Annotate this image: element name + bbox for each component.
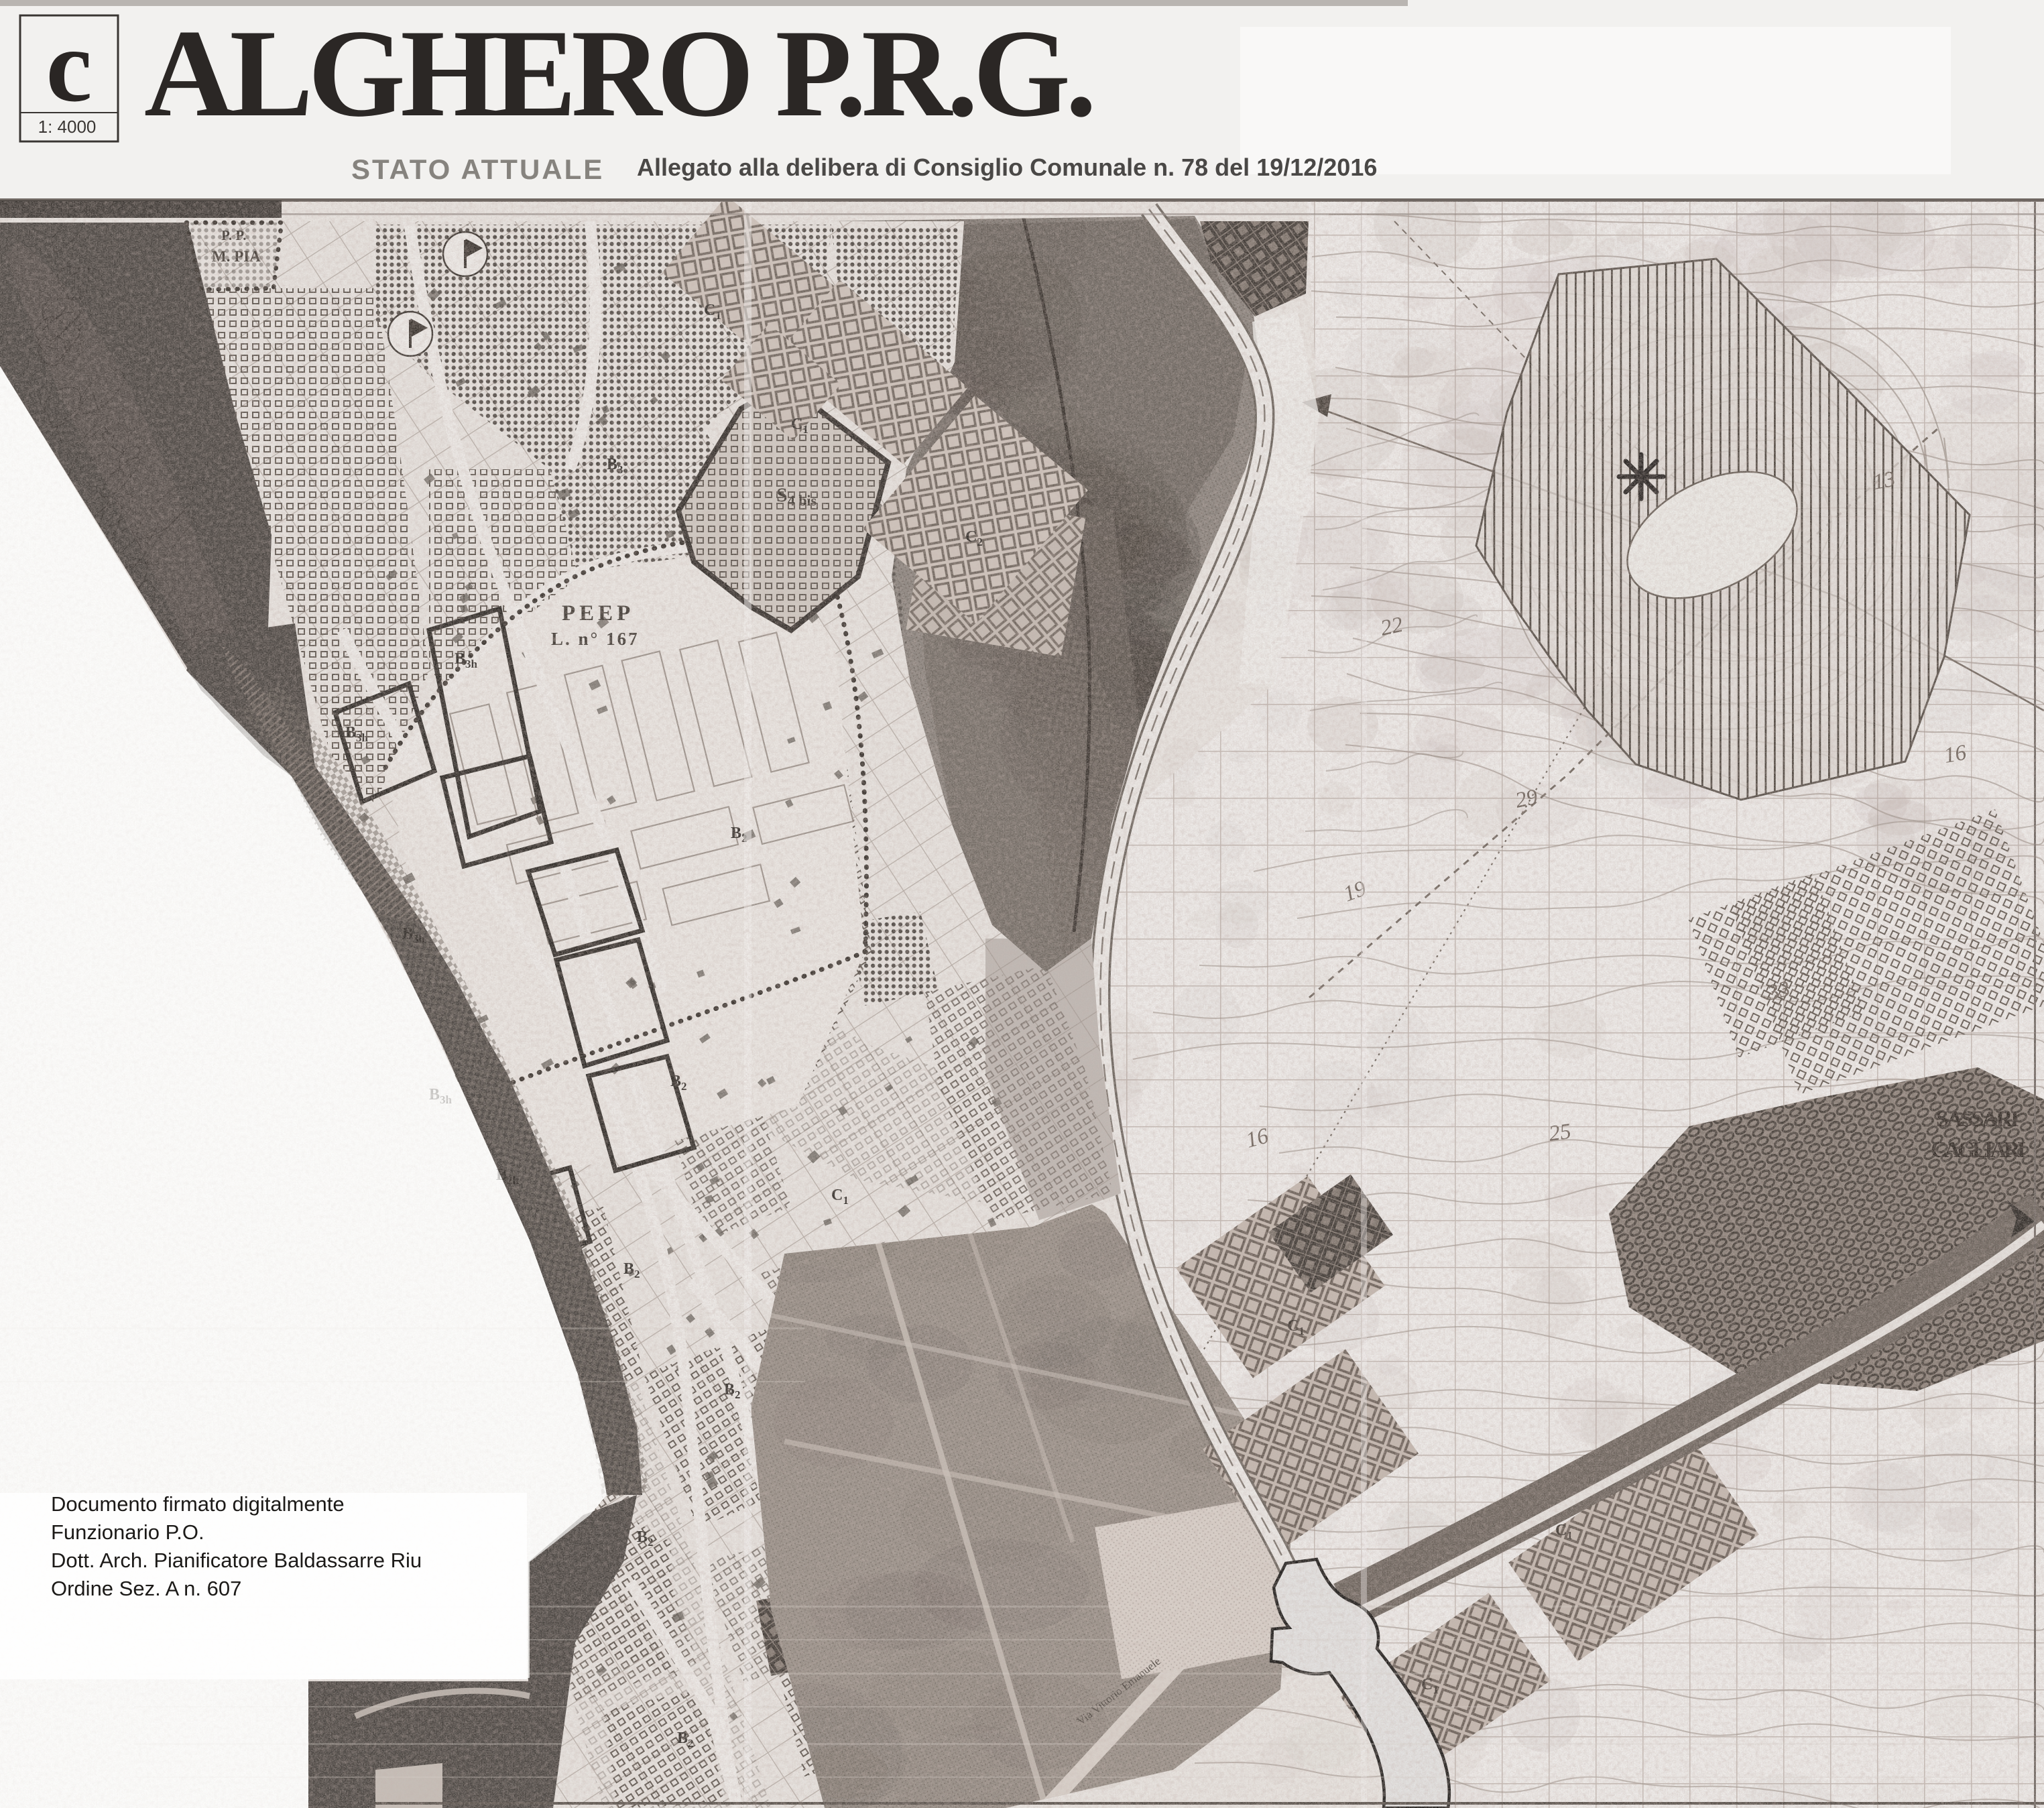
svg-text:Dott. Arch. Pianificatore Bald: Dott. Arch. Pianificatore Baldassarre Ri… xyxy=(51,1549,422,1572)
svg-text:Ordine Sez. A n. 607: Ordine Sez. A n. 607 xyxy=(51,1577,241,1600)
svg-text:ALGHERO P.R.G.: ALGHERO P.R.G. xyxy=(144,4,1099,143)
svg-text:c: c xyxy=(46,8,93,123)
svg-text:Funzionario P.O.: Funzionario P.O. xyxy=(51,1520,204,1544)
svg-text:STATO ATTUALE: STATO ATTUALE xyxy=(351,154,604,185)
svg-text:1: 4000: 1: 4000 xyxy=(38,117,97,137)
svg-text:Documento firmato digitalmente: Documento firmato digitalmente xyxy=(51,1492,345,1516)
svg-text:Allegato alla delibera di Cons: Allegato alla delibera di Consiglio Comu… xyxy=(637,154,1377,181)
